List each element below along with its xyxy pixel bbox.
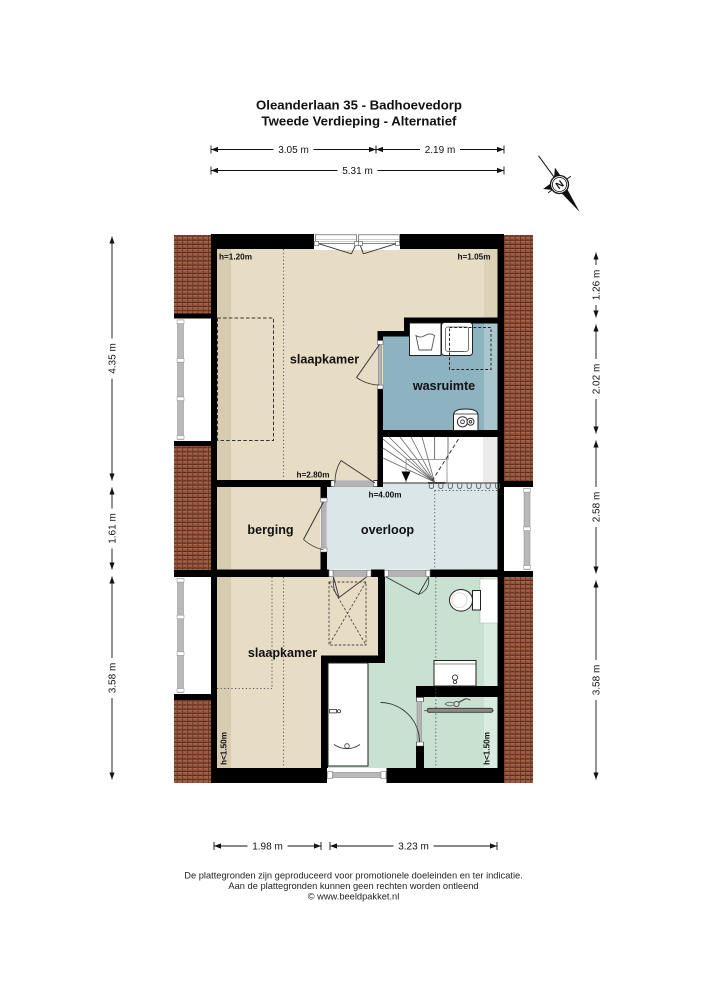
- svg-text:1.26 m: 1.26 m: [592, 270, 603, 301]
- svg-text:2.58 m: 2.58 m: [592, 492, 603, 523]
- svg-text:2.19 m: 2.19 m: [425, 145, 456, 156]
- svg-text:h=1.20m: h=1.20m: [219, 253, 252, 262]
- svg-text:1.98 m: 1.98 m: [252, 842, 283, 853]
- svg-text:wasruimte: wasruimte: [412, 379, 475, 393]
- svg-text:Tweede Verdieping - Alternatie: Tweede Verdieping - Alternatief: [262, 114, 458, 129]
- svg-text:Aan de plattegronden kunnen ge: Aan de plattegronden kunnen geen rechten…: [228, 881, 478, 891]
- svg-text:3.05 m: 3.05 m: [278, 145, 309, 156]
- svg-text:4.35 m: 4.35 m: [108, 343, 119, 374]
- svg-text:3.58 m: 3.58 m: [592, 665, 603, 696]
- svg-text:overloop: overloop: [361, 523, 414, 537]
- svg-text:h=2.80m: h=2.80m: [297, 471, 330, 480]
- svg-text:h=4.00m: h=4.00m: [369, 491, 402, 500]
- svg-text:5.31 m: 5.31 m: [342, 166, 373, 177]
- svg-text:h<1.50m: h<1.50m: [220, 732, 229, 765]
- svg-text:3.23 m: 3.23 m: [398, 842, 429, 853]
- svg-text:1.61 m: 1.61 m: [108, 513, 119, 544]
- svg-text:slaapkamer: slaapkamer: [290, 353, 359, 367]
- svg-text:berging: berging: [247, 523, 293, 537]
- svg-text:© www.beeldpakket.nl: © www.beeldpakket.nl: [308, 892, 400, 902]
- svg-text:2.02 m: 2.02 m: [592, 364, 603, 395]
- svg-text:Oleanderlaan 35 - Badhoevedorp: Oleanderlaan 35 - Badhoevedorp: [256, 98, 462, 113]
- svg-text:3.58 m: 3.58 m: [108, 663, 119, 694]
- svg-text:De plattegronden zijn geproduc: De plattegronden zijn geproduceerd voor …: [184, 871, 523, 881]
- svg-text:slaapkamer: slaapkamer: [248, 646, 317, 660]
- svg-text:h=1.05m: h=1.05m: [458, 253, 491, 262]
- svg-text:h<1.50m: h<1.50m: [483, 732, 492, 765]
